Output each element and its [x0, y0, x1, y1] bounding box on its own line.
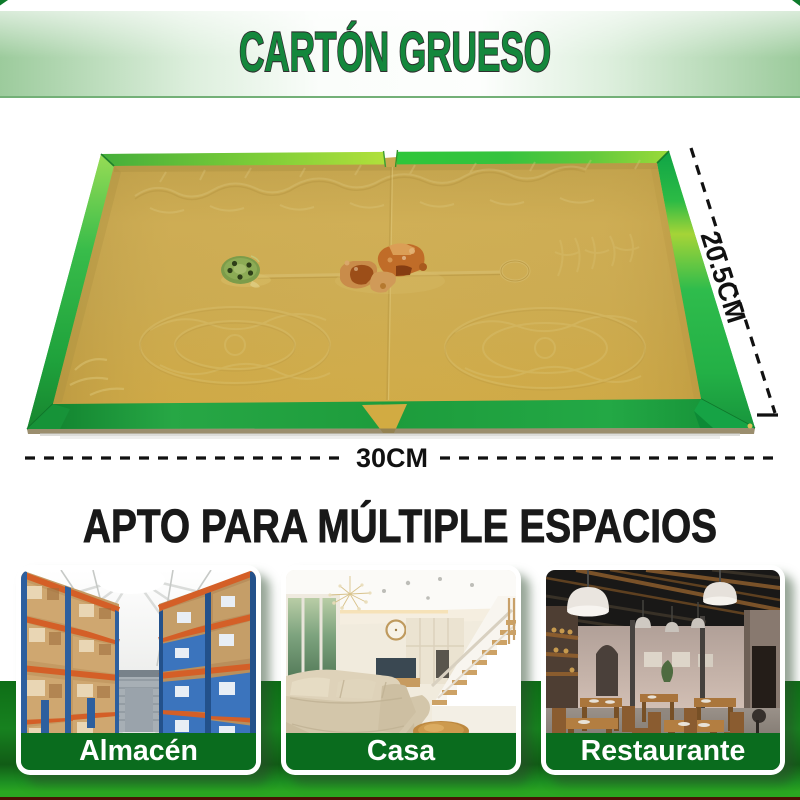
svg-text:CARTÓN GRUESO: CARTÓN GRUESO: [239, 20, 551, 83]
svg-text:30CM: 30CM: [356, 443, 428, 473]
svg-text:APTO PARA MÚLTIPLE ESPACIOS: APTO PARA MÚLTIPLE ESPACIOS: [83, 499, 717, 552]
